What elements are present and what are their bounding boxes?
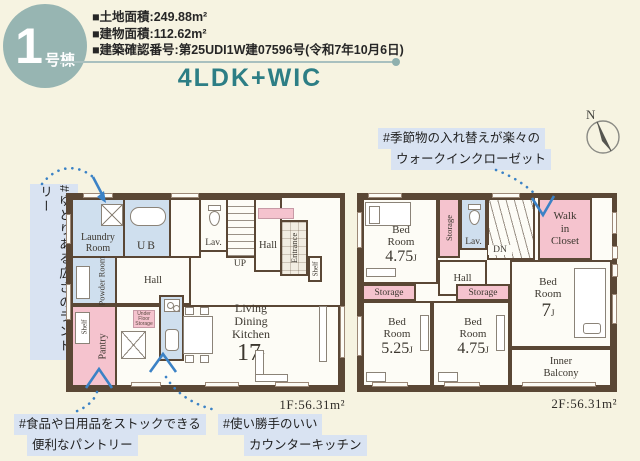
laundry-label: Laundry [81, 232, 115, 243]
bed2-label: Bed Room 5.25J [366, 316, 428, 359]
window [83, 193, 113, 198]
chair-icon [185, 307, 194, 315]
pantry-annotation-line2: 便利なパントリー [27, 435, 138, 456]
kitchen-annotation: #使い勝手のいい カウンターキッチン [218, 414, 367, 456]
pantry-connector-dots [72, 392, 97, 413]
window [368, 193, 402, 198]
shutter-box-icon [612, 246, 618, 259]
toilet-icon [469, 210, 480, 225]
chair-icon [200, 355, 209, 363]
powder-label: Powder Room [96, 256, 106, 305]
shelf-right-label: Shelf [311, 262, 319, 277]
room-pantry: Pantry Shelf [71, 305, 119, 387]
dn-label: DN [488, 245, 512, 255]
floor2-plan: Bed Room 4.75J Storage Lav. DN Walk in C… [357, 193, 617, 392]
entrance-label: Entrance [289, 233, 299, 263]
flyer-canvas: 1 号棟 ■土地面積:249.88m² ■建物面積:112.62m² ■建築確認… [0, 0, 640, 461]
window [357, 316, 362, 356]
window [612, 294, 617, 324]
window [492, 193, 520, 198]
bed4-label: Bed Room 7J [518, 276, 578, 324]
lav-2f-label: Lav. [465, 237, 482, 247]
confirmation-number-line: ■建築確認番号:第25UDI1W建07596号(令和7年10月6日) [92, 42, 404, 59]
window [275, 382, 309, 387]
hall-2f-label: Hall [453, 273, 471, 284]
shelf-left-label: Shelf [80, 320, 88, 335]
pantry-annotation: #食品や日用品をストックできる 便利なパントリー [14, 414, 206, 456]
kitchen-annotation-line2: カウンターキッチン [244, 435, 367, 456]
window [372, 382, 408, 387]
property-info: ■土地面積:249.88m² ■建物面積:112.62m² ■建築確認番号:第2… [92, 9, 404, 59]
window [357, 212, 362, 248]
building-number-badge: 1 号棟 [3, 4, 87, 88]
room-lavatory-2f: Lav. [460, 198, 487, 250]
compass-north-label: N [586, 107, 596, 122]
window [340, 306, 345, 358]
vanity-counter-icon [76, 266, 90, 299]
washing-machine-icon [101, 204, 123, 226]
page-title: 4LDK+WIC [100, 64, 400, 93]
room-laundry: Laundry Room [71, 198, 125, 258]
counter-l-horizontal [255, 374, 288, 382]
bed3-label: Bed Room 4.75J [442, 316, 504, 359]
window [171, 193, 199, 198]
closet-strip-1f [258, 208, 294, 219]
laundry-connector-dots [42, 168, 93, 184]
room-walk-in-closet: Walk in Closet [538, 198, 592, 260]
kitchen-annotation-line1: #使い勝手のいい [218, 414, 322, 435]
building-area-line: ■建物面積:112.62m² [92, 26, 404, 43]
bathtub-icon [130, 207, 166, 226]
building-number-suffix: 号棟 [45, 49, 75, 70]
laundry-label2: Room [81, 243, 115, 254]
room-entrance: Entrance [280, 220, 308, 276]
wic-annotation-line1: #季節物の入れ替えが楽々の [378, 128, 545, 149]
floor1-plan: Laundry Room UB Lav. Hall UP Entrance Sh… [66, 193, 345, 392]
window [612, 212, 617, 234]
window [522, 382, 596, 387]
room-drying [169, 198, 201, 258]
sink-icon [165, 329, 179, 351]
kitchen-counter [159, 295, 184, 361]
ub-label: UB [137, 240, 157, 252]
stove-icon [164, 299, 180, 312]
bed-icon [365, 202, 411, 226]
up-label: UP [222, 259, 258, 269]
compass-icon: N [586, 107, 619, 153]
pantry-label: Pantry [97, 333, 108, 359]
dining-table-icon [183, 316, 213, 354]
room-storage-left: Storage [362, 284, 416, 301]
bed-icon [574, 268, 606, 338]
bed1-label: Bed Room 4.75J [370, 224, 432, 267]
room-storage-mid: Storage [456, 284, 510, 301]
closet-door-icon [496, 315, 505, 351]
pantry-shelf-box: Shelf [75, 312, 90, 344]
desk-icon [366, 268, 396, 277]
dresser-icon [438, 372, 458, 382]
window [205, 382, 239, 387]
wic-annotation-line2: ウォークインクローゼット [391, 149, 551, 170]
room-lavatory-1f: Lav. [199, 198, 228, 252]
lav-1f-label: Lav. [205, 238, 222, 248]
floor-hatch-icon [121, 331, 146, 359]
storage-v-label: Storage [444, 215, 454, 241]
wic-annotation: #季節物の入れ替えが楽々の ウォークインクローゼット [378, 128, 551, 170]
tv-board-icon [319, 306, 327, 362]
room-ub: UB [123, 198, 171, 258]
toilet-icon [209, 211, 220, 226]
closet-door-icon [420, 315, 429, 351]
land-area-line: ■土地面積:249.88m² [92, 9, 404, 26]
window [444, 382, 480, 387]
header-divider [60, 61, 396, 63]
room-shelf-right: Shelf [308, 256, 322, 282]
dresser-icon [366, 372, 386, 382]
ldk-label: Living Dining Kitchen 17J [209, 302, 293, 370]
hall-lower-1f-label: Hall [144, 275, 162, 286]
shutter-box-icon [612, 264, 618, 277]
pantry-annotation-line1: #食品や日用品をストックできる [14, 414, 206, 435]
room-powder: Powder Room [71, 256, 117, 305]
window [131, 382, 161, 387]
building-number: 1 [15, 21, 43, 71]
floor2-area-label: 2F:56.31m² [512, 396, 617, 412]
chair-icon [185, 355, 194, 363]
chair-icon [200, 307, 209, 315]
storage-mid-label: Storage [468, 288, 497, 298]
window [66, 214, 71, 244]
under-floor-storage-label: Under Floor Storage [133, 310, 155, 328]
storage-left-label: Storage [374, 288, 403, 298]
room-storage-vertical: Storage [438, 198, 460, 258]
floor1-area-label: 1F:56.31m² [240, 397, 345, 413]
window [66, 284, 71, 320]
